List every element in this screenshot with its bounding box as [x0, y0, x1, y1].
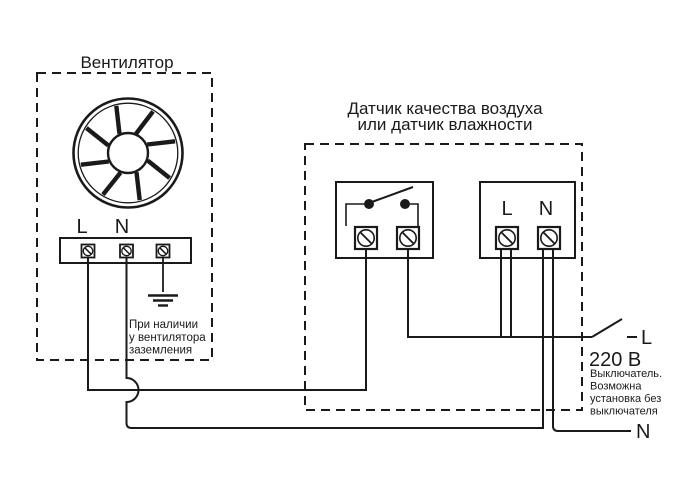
switch-note-line4: выключателя — [590, 406, 658, 418]
ground-icon — [148, 296, 178, 306]
ground-note-line2: у вентилятора — [129, 332, 206, 344]
switch-note-line2: Возможна — [590, 381, 642, 393]
fan-unit: Вентилятор L N — [37, 53, 212, 360]
fan-l-label: L — [76, 216, 87, 238]
sensor-terminal-n-screw-icon — [538, 227, 560, 249]
mains-l-label: L — [641, 327, 652, 349]
fan-terminal-ground-screw-icon — [157, 245, 170, 258]
sensor-n-label: N — [539, 198, 553, 220]
sensor-l-label: L — [501, 198, 512, 220]
fan-title: Вентилятор — [80, 53, 173, 72]
fan-blade-separators — [81, 106, 175, 200]
ground-note-line3: заземления — [129, 345, 192, 357]
ground-note-line1: При наличии — [129, 319, 198, 331]
sensor-boundary-box — [305, 144, 582, 410]
fan-terminal-n-screw-icon — [120, 245, 133, 258]
relay-block — [336, 182, 433, 258]
sensor-terminal-l-screw-icon — [496, 227, 518, 249]
switch-note-line3: установка без — [590, 393, 661, 405]
fan-terminal-l-screw-icon — [82, 245, 95, 258]
relay-terminal-2-screw-icon — [397, 227, 419, 249]
sensor-unit: Датчик качества воздуха или датчик влажн… — [305, 99, 582, 410]
switch-icon — [592, 319, 622, 337]
mains: L 220 В Выключатель. Возможна установка … — [589, 319, 662, 443]
wiring-diagram-page: Вентилятор L N — [0, 0, 700, 500]
sensor-power-block: L N — [480, 182, 575, 258]
relay-terminal-1-screw-icon — [355, 227, 377, 249]
switch-note-line1: Выключатель. — [590, 368, 662, 380]
fan-n-label: N — [115, 216, 129, 238]
wiring-diagram: Вентилятор L N — [0, 0, 700, 500]
relay-contact-icon — [346, 187, 418, 226]
mains-n-label: N — [636, 421, 650, 443]
fan-icon — [74, 99, 183, 208]
sensor-title-line2: или датчик влажности — [358, 115, 533, 134]
